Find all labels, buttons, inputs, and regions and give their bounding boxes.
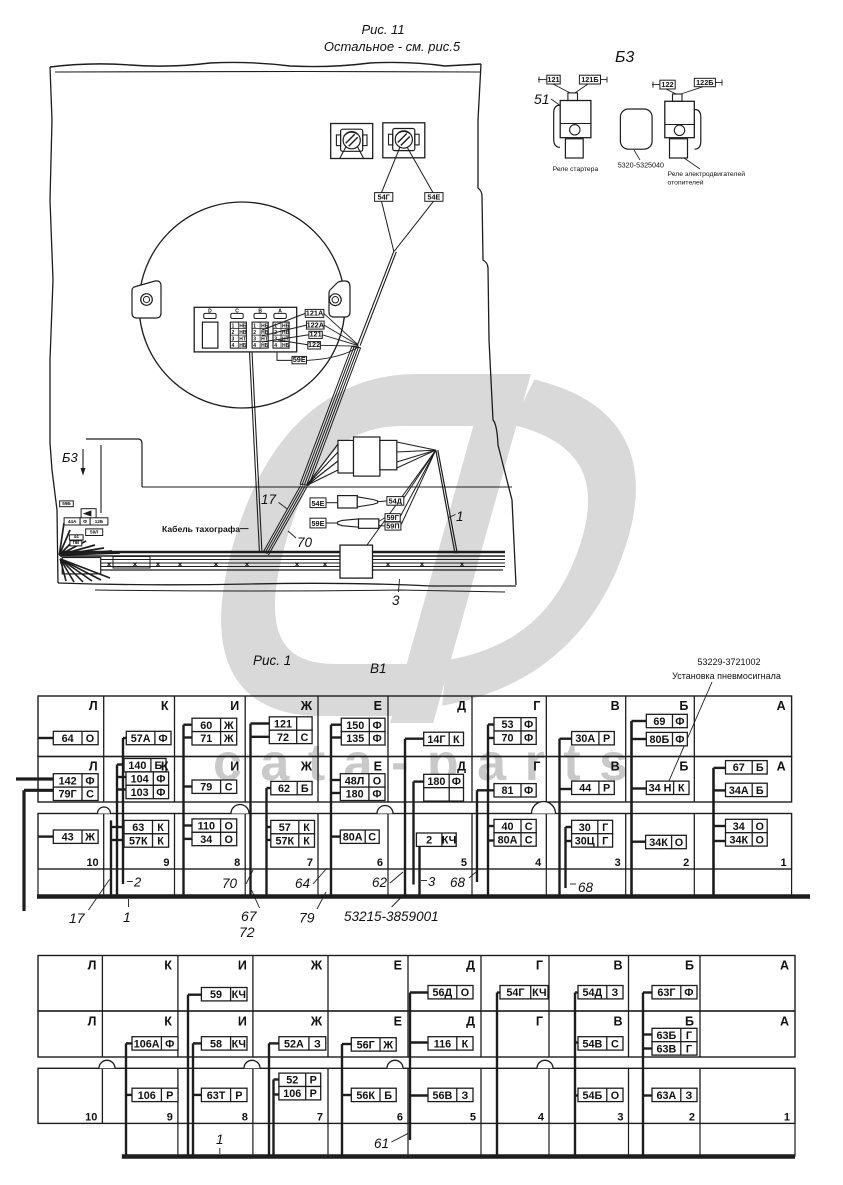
svg-text:70: 70 [501, 733, 513, 745]
svg-text:Р: Р [166, 1090, 173, 1102]
svg-text:A: A [278, 308, 282, 314]
svg-text:Ж: Ж [84, 832, 95, 844]
svg-text:Ф: Ф [452, 776, 461, 788]
svg-text:54Д: 54Д [389, 496, 403, 505]
svg-text:17: 17 [261, 492, 277, 507]
svg-text:C: C [235, 308, 239, 314]
svg-text:Е: Е [374, 760, 382, 774]
svg-text:Б: Б [685, 959, 694, 973]
svg-text:Ф: Ф [85, 775, 94, 787]
svg-text:Ф: Ф [684, 987, 693, 999]
svg-text:5: 5 [461, 857, 467, 869]
svg-text:Реле электродвигателей: Реле электродвигателей [668, 170, 746, 178]
svg-text:Ж: Ж [223, 733, 234, 745]
svg-text:И: И [238, 1015, 247, 1029]
svg-text:63А: 63А [656, 1090, 676, 1102]
svg-text:4: 4 [538, 1112, 545, 1124]
svg-text:С: С [368, 832, 376, 844]
svg-text:59: 59 [210, 989, 222, 1001]
svg-text:Б: Б [685, 1015, 694, 1029]
svg-text:С: С [525, 834, 533, 846]
svg-text:К: К [164, 959, 172, 973]
svg-text:44А: 44А [68, 519, 77, 524]
svg-text:Г: Г [686, 1030, 692, 1042]
svg-text:6: 6 [397, 1112, 403, 1124]
svg-text:122Б: 122Б [696, 78, 713, 87]
svg-text:54Г: 54Г [378, 193, 390, 202]
svg-text:3: 3 [232, 336, 235, 342]
svg-text:48Л: 48Л [345, 775, 365, 787]
svg-text:И: И [230, 760, 239, 774]
svg-text:53: 53 [501, 719, 513, 731]
svg-text:6: 6 [377, 857, 383, 869]
svg-text:В: В [613, 1015, 622, 1029]
svg-text:И: И [238, 959, 247, 973]
svg-text:4: 4 [535, 857, 542, 869]
svg-text:17: 17 [69, 910, 86, 926]
svg-text:Б3: Б3 [62, 450, 78, 465]
svg-text:D: D [208, 308, 212, 314]
svg-text:54Е: 54Е [312, 499, 325, 508]
svg-text:57А: 57А [131, 733, 151, 745]
svg-text:В: В [613, 959, 622, 973]
svg-text:54Б: 54Б [583, 1090, 603, 1102]
svg-text:4: 4 [232, 343, 235, 349]
svg-text:54В: 54В [582, 1038, 602, 1050]
svg-text:53215-3859001: 53215-3859001 [344, 909, 439, 924]
svg-text:10: 10 [86, 857, 98, 869]
svg-text:А: А [777, 699, 786, 713]
svg-text:122А: 122А [307, 320, 325, 329]
svg-text:71: 71 [200, 733, 212, 745]
svg-text:63Г: 63Г [657, 987, 675, 999]
svg-text:2: 2 [133, 875, 142, 890]
svg-text:Ж: Ж [310, 959, 323, 973]
svg-text:Р: Р [603, 783, 610, 795]
svg-text:НВ: НВ [239, 330, 247, 336]
svg-text:Б: Б [756, 762, 764, 774]
svg-text:Ф: Ф [372, 733, 381, 745]
svg-text:67: 67 [241, 908, 258, 924]
svg-text:О: О [224, 834, 232, 846]
svg-text:З: З [612, 987, 619, 999]
svg-text:30А: 30А [575, 733, 595, 745]
svg-text:63Т: 63Т [207, 1090, 226, 1102]
svg-text:116: 116 [434, 1038, 451, 1050]
svg-text:54Г: 54Г [506, 987, 524, 999]
svg-text:79: 79 [200, 782, 212, 794]
svg-text:44: 44 [579, 783, 591, 795]
svg-text:НБ: НБ [282, 323, 290, 329]
svg-text:57К: 57К [129, 835, 148, 847]
svg-text:8: 8 [234, 857, 240, 869]
svg-text:51: 51 [534, 91, 550, 107]
svg-text:44: 44 [74, 534, 79, 539]
svg-text:О: О [755, 821, 763, 833]
svg-text:Л: Л [89, 699, 98, 713]
svg-text:З: З [686, 1090, 693, 1102]
svg-text:61: 61 [374, 1136, 389, 1151]
svg-text:С: С [525, 821, 533, 833]
svg-text:150: 150 [346, 720, 364, 732]
svg-text:Ж: Ж [310, 1015, 323, 1029]
svg-text:2: 2 [253, 330, 256, 336]
svg-text:Ф: Ф [158, 733, 167, 745]
svg-text:О: О [86, 733, 94, 745]
svg-text:121А: 121А [306, 309, 324, 318]
svg-text:отопителей: отопителей [668, 179, 704, 187]
svg-text:Е: Е [374, 699, 382, 713]
svg-text:Ф: Ф [165, 1038, 174, 1050]
svg-text:Ф: Ф [675, 734, 684, 746]
svg-text:52А: 52А [284, 1038, 304, 1050]
svg-text:122: 122 [661, 80, 673, 89]
svg-text:К: К [462, 1038, 469, 1050]
svg-text:142: 142 [59, 775, 77, 787]
svg-text:59Л: 59Л [90, 530, 98, 535]
svg-text:НБ: НБ [239, 323, 247, 329]
svg-text:Б: Б [679, 699, 688, 713]
svg-text:69: 69 [653, 716, 665, 728]
svg-text:34К: 34К [649, 837, 668, 849]
svg-text:КЧ: КЧ [532, 987, 546, 999]
svg-text:З: З [314, 1038, 321, 1050]
svg-text:106: 106 [283, 1088, 301, 1100]
svg-text:С: С [86, 789, 94, 801]
svg-text:5: 5 [470, 1112, 476, 1124]
svg-text:Ф: Ф [156, 787, 165, 799]
svg-text:НБ: НБ [261, 343, 269, 349]
svg-text:9: 9 [167, 1112, 173, 1124]
svg-text:Ф: Ф [372, 720, 381, 732]
svg-text:Рис. 1: Рис. 1 [253, 653, 291, 668]
svg-text:34К: 34К [729, 834, 748, 846]
svg-text:63В: 63В [656, 1043, 676, 1055]
svg-text:1: 1 [784, 1112, 790, 1124]
svg-text:60: 60 [200, 720, 212, 732]
svg-text:О: О [611, 1090, 619, 1102]
svg-text:С: С [300, 732, 308, 744]
svg-text:80Б: 80Б [650, 734, 670, 746]
svg-text:О: О [224, 821, 232, 833]
svg-text:140: 140 [128, 760, 146, 772]
svg-text:Ж: Ж [300, 699, 313, 713]
svg-text:Е: Е [394, 959, 402, 973]
svg-text:56Д: 56Д [433, 987, 453, 999]
svg-text:121: 121 [274, 718, 292, 730]
svg-text:Л: Л [89, 760, 98, 774]
svg-text:30: 30 [579, 822, 591, 834]
svg-text:Г: Г [602, 822, 608, 834]
svg-text:79Г: 79Г [59, 789, 77, 801]
svg-text:62: 62 [372, 875, 388, 890]
svg-text:Г: Г [686, 1043, 692, 1055]
svg-text:3: 3 [392, 593, 400, 608]
svg-text:К: К [678, 783, 685, 795]
svg-text:56Г: 56Г [357, 1039, 375, 1051]
svg-text:1: 1 [253, 323, 256, 329]
svg-text:Д: Д [457, 760, 466, 774]
svg-text:Ф: Ф [524, 719, 533, 731]
svg-text:81: 81 [501, 785, 513, 797]
svg-text:Б3: Б3 [615, 49, 634, 66]
svg-text:НБ: НБ [239, 343, 247, 349]
svg-text:106А: 106А [134, 1038, 160, 1050]
svg-text:С: С [611, 1038, 619, 1050]
svg-text:64: 64 [295, 876, 310, 891]
svg-text:59Е: 59Е [312, 519, 325, 528]
svg-text:43: 43 [62, 832, 74, 844]
svg-text:Д: Д [457, 699, 466, 713]
svg-text:З: З [462, 1090, 469, 1102]
svg-text:КЧ: КЧ [442, 835, 456, 847]
svg-text:К: К [157, 822, 164, 834]
svg-text:Б: Б [384, 1090, 392, 1102]
svg-text:Д: Д [466, 959, 475, 973]
svg-text:63Б: 63Б [657, 1030, 677, 1042]
svg-text:К: К [161, 760, 169, 774]
svg-text:1: 1 [780, 857, 786, 869]
svg-text:34 Н: 34 Н [649, 783, 672, 795]
svg-text:О: О [755, 834, 763, 846]
svg-text:70: 70 [222, 876, 238, 891]
svg-text:52: 52 [286, 1075, 298, 1087]
svg-text:64: 64 [62, 733, 74, 745]
svg-text:14Г: 14Г [427, 734, 445, 746]
svg-text:ПВ: ПВ [73, 540, 79, 545]
svg-text:Установка пневмосигнала: Установка пневмосигнала [672, 671, 781, 681]
svg-text:57К: 57К [275, 835, 294, 847]
svg-text:Е: Е [394, 1015, 402, 1029]
svg-text:В: В [611, 760, 620, 774]
svg-text:121: 121 [310, 330, 322, 339]
svg-text:2: 2 [232, 330, 235, 336]
svg-text:Б: Б [679, 760, 688, 774]
svg-text:Остальное - см. рис.5: Остальное - см. рис.5 [324, 39, 461, 54]
svg-text:Ф: Ф [675, 716, 684, 728]
svg-text:110: 110 [198, 821, 215, 833]
svg-text:Г: Г [533, 760, 540, 774]
svg-text:К: К [303, 822, 310, 834]
svg-text:121Б: 121Б [581, 75, 598, 84]
svg-text:Ж: Ж [300, 760, 313, 774]
svg-text:В1: В1 [370, 661, 387, 676]
svg-text:И: И [230, 699, 239, 713]
svg-text:54Д: 54Д [583, 987, 603, 999]
svg-text:106: 106 [138, 1090, 156, 1102]
svg-text:56В: 56В [432, 1090, 452, 1102]
svg-text:12Б: 12Б [95, 519, 104, 524]
svg-text:Реле стартера: Реле стартера [553, 166, 599, 173]
svg-text:1: 1 [123, 909, 131, 925]
svg-text:К: К [303, 835, 310, 847]
svg-text:68: 68 [450, 875, 466, 890]
svg-text:4: 4 [253, 343, 256, 349]
svg-text:Б: Б [756, 785, 764, 797]
svg-text:Г: Г [536, 959, 543, 973]
svg-text:8: 8 [242, 1112, 248, 1124]
svg-text:70: 70 [297, 535, 313, 550]
svg-text:3: 3 [428, 874, 436, 889]
svg-text:135: 135 [346, 733, 364, 745]
svg-text:121: 121 [547, 75, 559, 84]
svg-text:B: B [258, 308, 262, 314]
svg-text:103: 103 [131, 787, 149, 799]
svg-text:Кабель тахографа: Кабель тахографа [162, 524, 240, 534]
svg-text:1: 1 [216, 1132, 224, 1147]
svg-text:Д: Д [466, 1015, 475, 1029]
svg-text:Ф: Ф [372, 789, 381, 801]
svg-text:К: К [453, 734, 460, 746]
svg-text:63: 63 [132, 822, 144, 834]
svg-text:Ж: Ж [223, 720, 234, 732]
svg-text:К: К [164, 1015, 172, 1029]
svg-text:4: 4 [274, 343, 277, 349]
svg-text:62: 62 [278, 783, 290, 795]
svg-text:НТ: НТ [239, 336, 246, 342]
svg-text:67: 67 [733, 762, 745, 774]
svg-text:А: А [780, 959, 789, 973]
svg-text:7: 7 [317, 1112, 323, 1124]
svg-text:В: В [611, 699, 620, 713]
svg-text:9: 9 [163, 857, 169, 869]
svg-text:Р: Р [310, 1088, 317, 1100]
svg-text:Г: Г [602, 835, 608, 847]
svg-text:122: 122 [308, 340, 320, 349]
svg-text:Г: Г [536, 1015, 543, 1029]
svg-text:58: 58 [210, 1038, 222, 1050]
svg-text:Р: Р [310, 1075, 317, 1087]
svg-text:Ф: Ф [156, 774, 165, 786]
svg-text:А: А [780, 1015, 789, 1029]
svg-text:59Е: 59Е [293, 355, 306, 364]
svg-text:О: О [373, 775, 381, 787]
svg-text:10: 10 [85, 1112, 97, 1124]
svg-text:Л: Л [88, 959, 97, 973]
svg-text:3: 3 [617, 1112, 623, 1124]
svg-text:34: 34 [200, 834, 212, 846]
svg-text:Л: Л [88, 1015, 97, 1029]
svg-text:1: 1 [232, 323, 235, 329]
svg-text:КЧ: КЧ [232, 1038, 246, 1050]
svg-text:180: 180 [427, 776, 445, 788]
svg-text:2: 2 [426, 835, 432, 847]
svg-text:68: 68 [578, 880, 594, 895]
svg-text:К: К [161, 699, 169, 713]
svg-text:72: 72 [239, 924, 255, 940]
svg-text:54Е: 54Е [427, 193, 440, 202]
svg-text:104: 104 [131, 774, 149, 786]
svg-text:5320-5325040: 5320-5325040 [618, 161, 664, 170]
svg-text:2: 2 [683, 857, 689, 869]
svg-text:72: 72 [277, 732, 289, 744]
svg-text:1: 1 [456, 509, 464, 524]
svg-text:40: 40 [501, 821, 513, 833]
svg-text:Р: Р [603, 733, 610, 745]
svg-text:О: О [461, 987, 469, 999]
svg-text:30Ц: 30Ц [575, 835, 595, 847]
svg-text:7: 7 [307, 857, 313, 869]
svg-text:Б: Б [301, 783, 309, 795]
svg-text:Ф: Ф [83, 519, 87, 524]
svg-text:59Б: 59Б [62, 501, 71, 506]
svg-text:53229-3721002: 53229-3721002 [697, 657, 760, 667]
svg-text:3: 3 [253, 336, 256, 342]
svg-text:Ж: Ж [382, 1039, 393, 1051]
svg-text:О: О [675, 837, 683, 849]
svg-text:180: 180 [346, 789, 364, 801]
svg-text:А: А [777, 760, 786, 774]
svg-text:57: 57 [279, 822, 291, 834]
svg-text:34: 34 [733, 821, 745, 833]
svg-text:2: 2 [689, 1112, 695, 1124]
svg-text:80А: 80А [498, 834, 518, 846]
svg-text:59П: 59П [386, 521, 399, 530]
svg-text:56К: 56К [356, 1090, 375, 1102]
svg-text:3: 3 [615, 857, 621, 869]
svg-text:Ф: Ф [524, 733, 533, 745]
svg-text:Р: Р [235, 1090, 242, 1102]
svg-text:Г: Г [533, 699, 540, 713]
svg-text:Рис. 11: Рис. 11 [361, 22, 404, 37]
svg-text:С: С [225, 782, 233, 794]
svg-text:80А: 80А [343, 832, 363, 844]
svg-text:КЧ: КЧ [232, 989, 246, 1001]
svg-text:34А: 34А [729, 785, 749, 797]
svg-text:НБ: НБ [282, 343, 290, 349]
svg-text:79: 79 [299, 910, 315, 926]
svg-text:Ф: Ф [524, 785, 533, 797]
svg-text:К: К [157, 835, 164, 847]
